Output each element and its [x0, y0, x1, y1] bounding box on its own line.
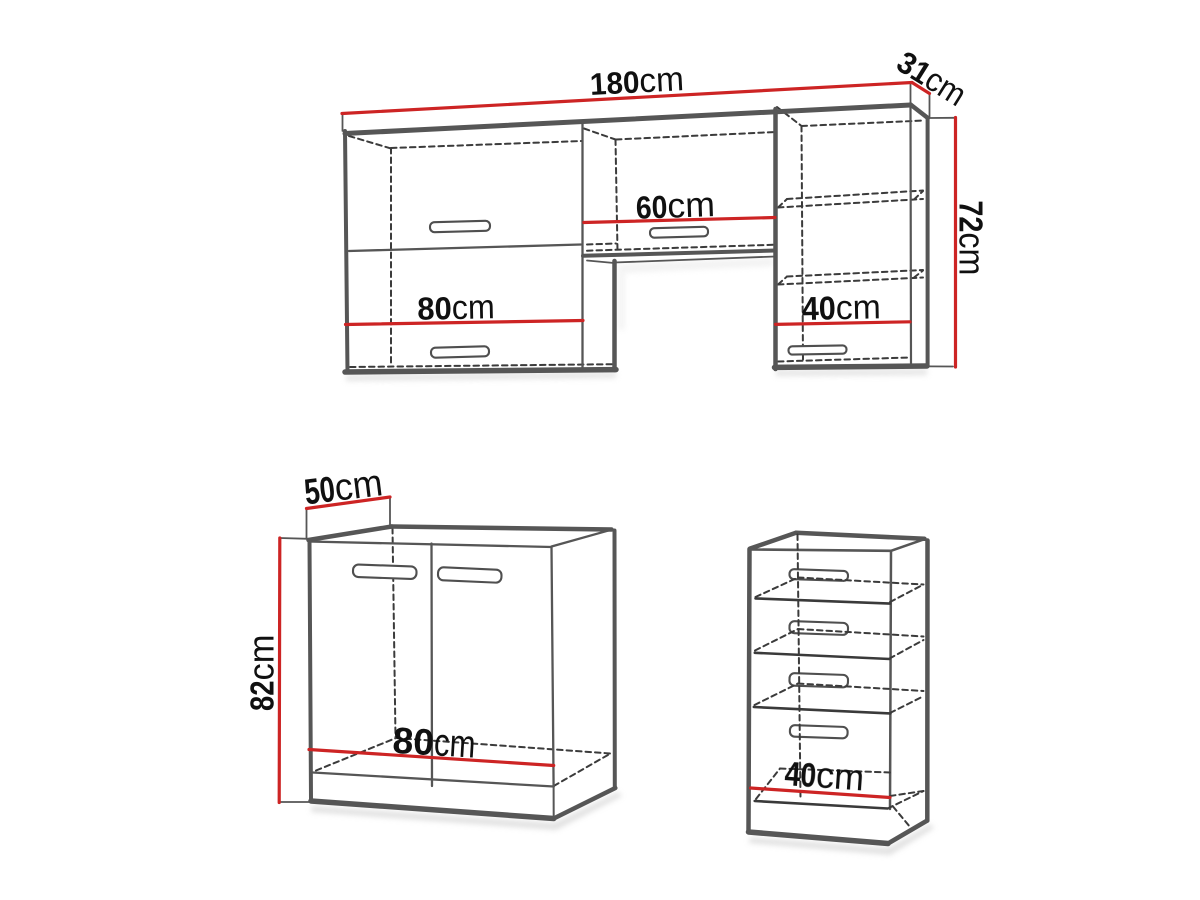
- svg-text:72cm: 72cm: [952, 200, 993, 275]
- svg-text:40cm: 40cm: [783, 752, 865, 798]
- svg-text:180cm: 180cm: [589, 60, 685, 103]
- svg-text:80cm: 80cm: [391, 719, 476, 767]
- svg-text:82cm: 82cm: [241, 635, 282, 712]
- svg-text:40cm: 40cm: [801, 288, 881, 328]
- svg-text:80cm: 80cm: [417, 288, 495, 328]
- svg-text:60cm: 60cm: [635, 185, 715, 227]
